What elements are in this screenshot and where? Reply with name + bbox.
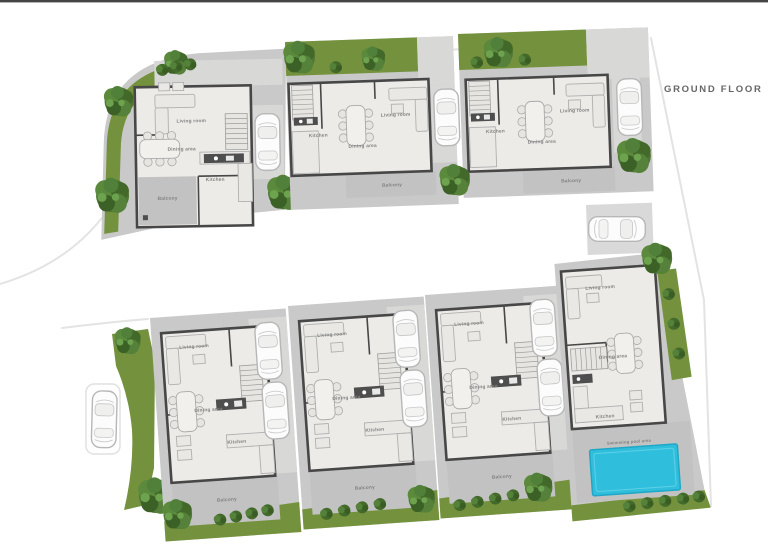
house-3-walkway: [586, 27, 650, 79]
room-label-balcony: Balcony: [561, 178, 581, 185]
car-icon: [255, 114, 281, 171]
room-label-kitchen: Kitchen: [309, 133, 328, 140]
car-icon: [529, 299, 557, 357]
room-label-dining: Dining area: [168, 146, 197, 152]
sofa: [441, 325, 455, 362]
armchair: [452, 426, 467, 437]
armchair: [159, 83, 170, 91]
sofa: [592, 95, 605, 127]
car-icon: [433, 89, 460, 146]
armchair: [568, 100, 580, 109]
armchair: [451, 412, 466, 423]
car-icon: [262, 381, 290, 439]
parking-strip-right: [586, 203, 654, 255]
sofa: [389, 87, 427, 100]
car-icon: [589, 217, 646, 242]
parking-bay-left: [86, 384, 120, 454]
sofa: [415, 99, 428, 131]
room-label-balcony: Balcony: [382, 182, 402, 189]
room-label-dining: Dining area: [348, 143, 377, 150]
armchair: [193, 354, 206, 364]
armchair: [177, 449, 192, 460]
car-icon: [254, 322, 282, 380]
house-4: Living room Dining area Kitchen Balcony: [149, 309, 301, 542]
kitchen-counter: [534, 422, 550, 451]
bath-unit: [294, 117, 318, 126]
sofa: [155, 94, 195, 108]
car-icon: [400, 369, 428, 427]
top-border-line: [0, 0, 768, 2]
armchair: [587, 293, 600, 303]
armchair: [315, 437, 330, 448]
sofa: [304, 336, 318, 373]
armchair: [629, 390, 642, 400]
car-icon: [392, 310, 420, 368]
car-icon: [537, 358, 565, 416]
kitchen-counter: [397, 433, 413, 462]
room-label-living: Living room: [560, 107, 590, 114]
house-1: Living room Dining area Kitchen Balcony: [93, 48, 302, 240]
planter: [143, 215, 148, 220]
car-icon: [91, 391, 117, 448]
room-label-kitchen: Kitchen: [486, 128, 505, 135]
stairs-icon: [292, 85, 314, 120]
room-label-living: Living room: [381, 112, 411, 119]
house-7: Living room Dining area Kitchen Swimming…: [553, 240, 711, 521]
house-6: Living room Dining area Kitchen Balcony: [425, 286, 576, 519]
kitchen-sink-unit: [572, 374, 593, 384]
stairs-icon: [469, 81, 491, 116]
room-label-balcony: Balcony: [158, 196, 178, 202]
armchair: [176, 435, 191, 446]
armchair: [331, 342, 344, 352]
house-5: Living room Dining area Kitchen Balcony: [288, 297, 439, 530]
sofa: [155, 108, 168, 134]
bath-unit: [471, 113, 495, 122]
sofa: [566, 83, 604, 96]
stairs-icon: [225, 113, 248, 149]
armchair: [630, 402, 643, 412]
armchair: [314, 423, 329, 434]
kitchen-counter: [575, 406, 624, 423]
kitchen-counter: [259, 445, 275, 474]
road-left-curb: [62, 319, 148, 328]
swimming-pool: [589, 444, 680, 496]
armchair: [391, 104, 403, 113]
dining-table-icon: [517, 101, 553, 142]
room-label-living: Living room: [176, 118, 206, 125]
armchair: [468, 331, 481, 341]
page-title: GROUND FLOOR: [664, 84, 764, 95]
dining-table-icon: [606, 332, 643, 374]
sofa: [166, 348, 180, 385]
kitchen-counter: [238, 163, 253, 201]
house-3: Kitchen Dining area Living room Balcony: [434, 27, 653, 198]
dining-table-icon: [338, 105, 374, 146]
site-plan: Living room Dining area Kitchen Balcony …: [0, 0, 768, 545]
car-icon: [616, 78, 643, 135]
armchair: [173, 82, 184, 90]
site-plan-page: Living room Dining area Kitchen Balcony …: [0, 0, 768, 545]
room-label-kitchen: Kitchen: [206, 177, 225, 183]
sofa: [566, 288, 580, 319]
room-label-dining: Dining area: [528, 139, 557, 146]
kitchen-sink-unit: [204, 153, 244, 163]
house-2: Kitchen Dining area Living room Balcony: [283, 35, 462, 210]
